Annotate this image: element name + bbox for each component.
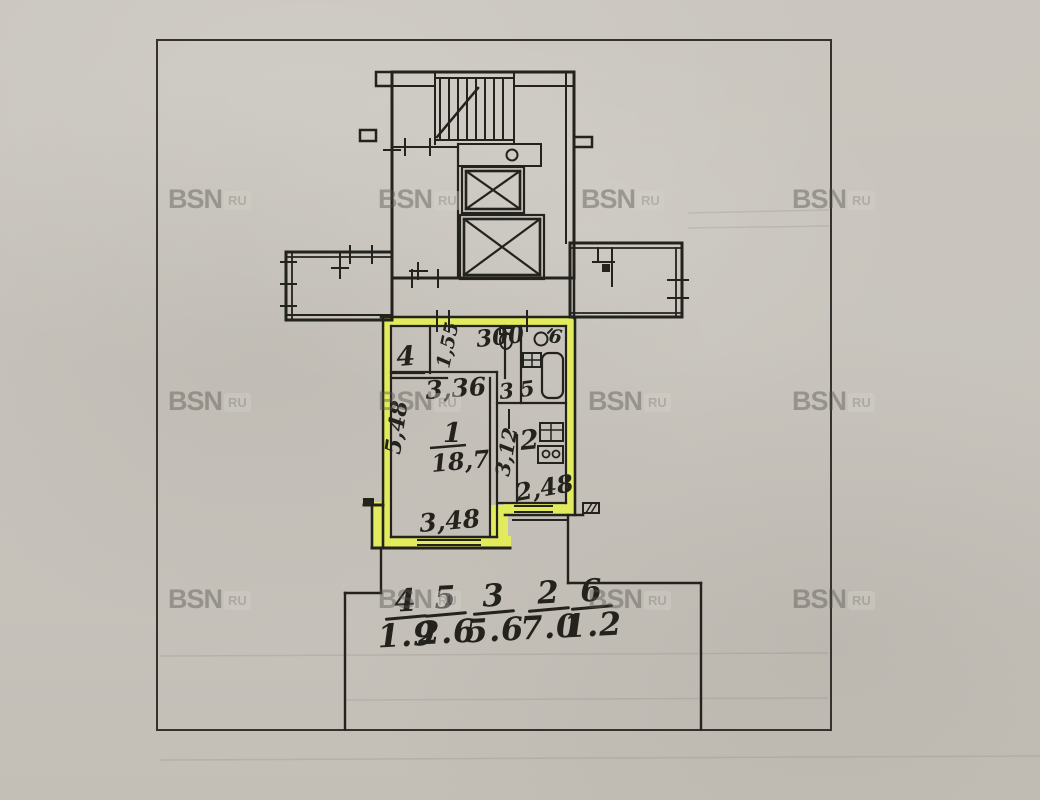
- hall-width-label: 300: [475, 321, 526, 353]
- room-number: 5: [434, 584, 457, 611]
- area-table-entry: 6 1.2: [564, 577, 619, 642]
- hall-dim-label: 3,36: [424, 372, 487, 405]
- wc-number-label: 6: [547, 325, 563, 349]
- room-number: 6: [580, 577, 603, 604]
- bathtub-icon: [542, 353, 563, 398]
- scanned-floor-plan-page: 4 1,55 300 3,36 3 5 6 5,48 1 18,7 3,48 2…: [0, 0, 1040, 800]
- room-number: 4: [394, 587, 417, 614]
- room-number: 3: [482, 582, 505, 609]
- landing: [458, 144, 541, 166]
- room-area: 5.6: [465, 613, 525, 646]
- floor-plan: 4 1,55 300 3,36 3 5 6 5,48 1 18,7 3,48 2…: [0, 0, 1040, 800]
- stairs: [435, 72, 514, 144]
- room1-area-label: 18,7: [430, 444, 491, 478]
- room-area: 1.2: [563, 608, 623, 641]
- left-wing: [281, 246, 392, 320]
- kitchen-number-label: 2: [517, 424, 540, 457]
- area-table-entry: 3 5.6: [466, 582, 521, 647]
- room-number: 2: [537, 579, 560, 606]
- chute-circle: [507, 150, 518, 161]
- right-wing: [570, 243, 688, 317]
- hall-number-label: 3: [498, 378, 515, 404]
- stair-tower: [360, 72, 592, 318]
- room1-width-label: 3,48: [418, 504, 481, 538]
- room4-number-label: 4: [395, 341, 416, 373]
- bath-number-label: 5: [518, 375, 536, 402]
- basin-icon: [535, 333, 548, 346]
- elevator-shafts: [458, 144, 544, 279]
